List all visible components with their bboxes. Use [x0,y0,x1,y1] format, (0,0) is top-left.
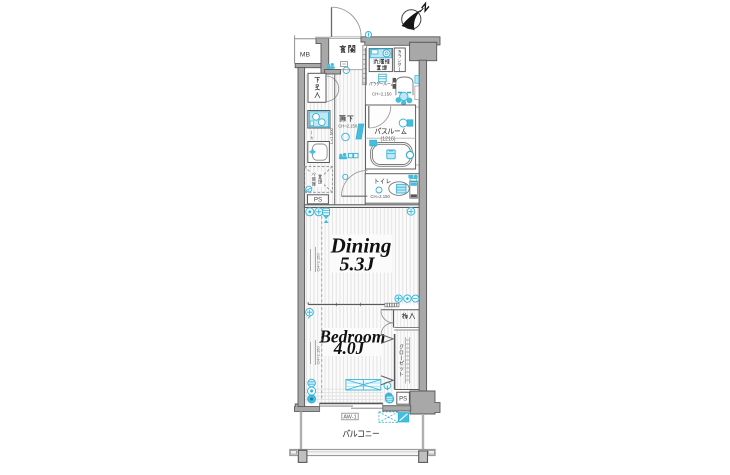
svg-text:L=1.500: L=1.500 [329,127,334,144]
svg-text:CH=2.150: CH=2.150 [372,92,392,97]
svg-text:PS: PS [314,197,322,204]
svg-text:(1216): (1216) [381,137,396,143]
svg-text:MB: MB [300,52,311,59]
svg-text:CH=2.150: CH=2.150 [370,194,390,199]
svg-text:CH=2.150: CH=2.150 [316,346,321,365]
svg-text:5.3J: 5.3J [340,254,376,276]
svg-text:CH=2.150: CH=2.150 [316,253,321,272]
svg-text:CH=2.150: CH=2.150 [338,124,358,129]
svg-text:PS: PS [399,397,407,403]
svg-text:4.0J: 4.0J [333,338,366,358]
svg-text:AW-1: AW-1 [343,414,356,420]
